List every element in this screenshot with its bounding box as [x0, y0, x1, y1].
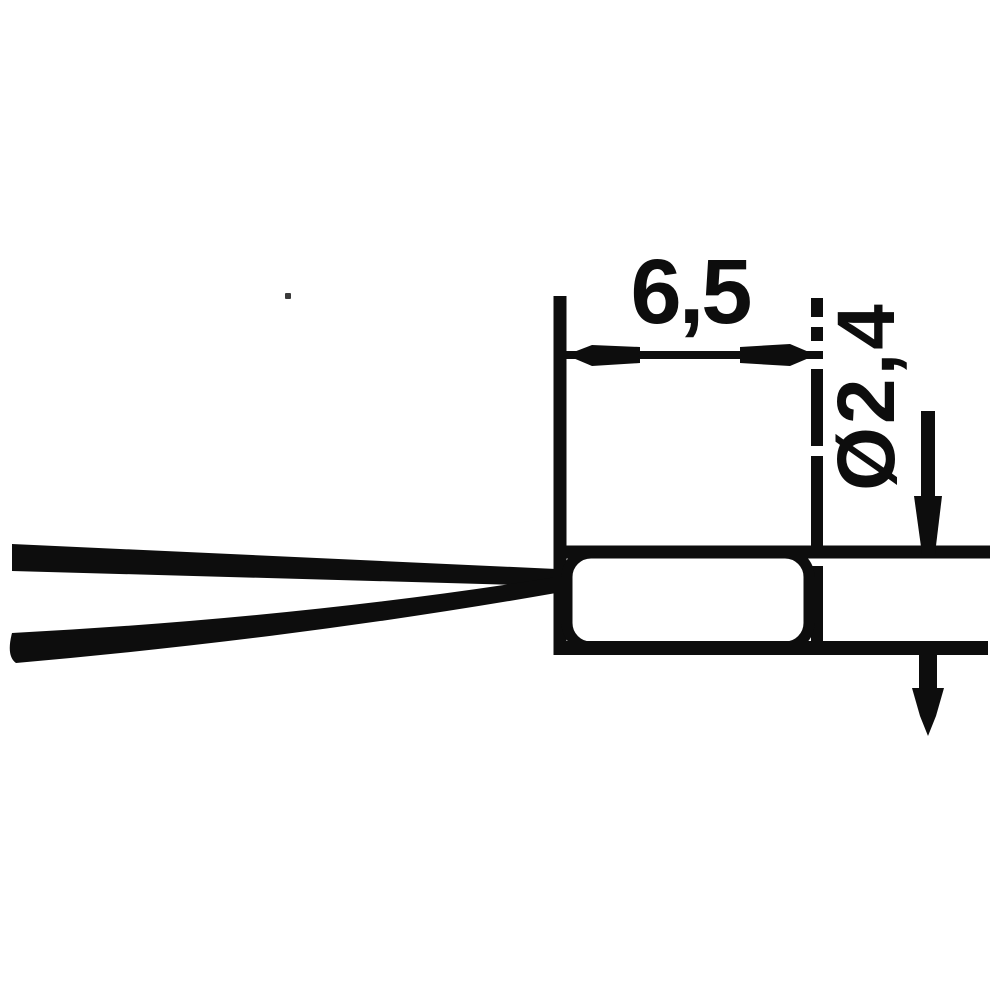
diameter-dim-arrow-bottom-icon — [912, 652, 944, 736]
length-dim-arrow-right-icon — [740, 344, 816, 366]
scan-speck — [285, 293, 291, 299]
bulb-body — [567, 553, 809, 647]
lead-wire-lower — [10, 577, 556, 663]
diameter-dimension-label: Ø2,4 — [825, 286, 909, 506]
diameter-dim-arrow-top-icon — [914, 411, 942, 554]
length-dim-arrow-left-icon — [566, 345, 640, 366]
technical-drawing-canvas: 6,5 Ø2,4 — [0, 0, 1000, 1000]
lead-wire-upper — [12, 544, 556, 586]
length-dimension-label: 6,5 — [557, 246, 823, 340]
